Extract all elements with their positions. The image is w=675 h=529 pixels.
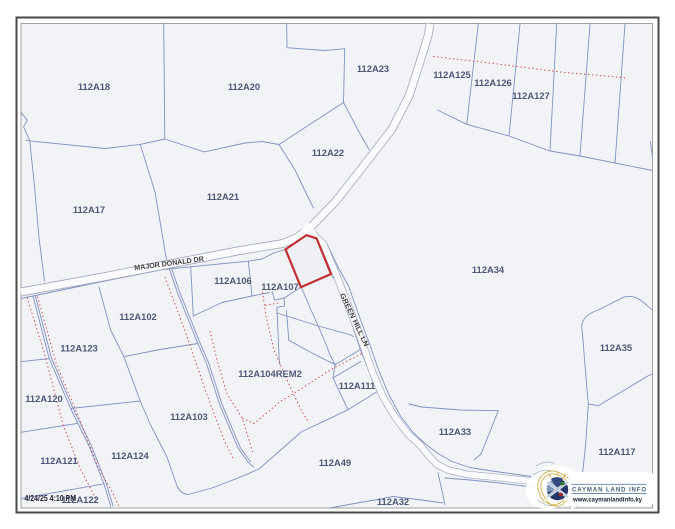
svg-text:112A111: 112A111	[339, 380, 376, 391]
svg-text:112A124: 112A124	[111, 450, 149, 461]
svg-text:112A22: 112A22	[312, 147, 344, 158]
svg-text:112A102: 112A102	[119, 311, 157, 322]
svg-text:CAYMAN LAND INFO: CAYMAN LAND INFO	[572, 486, 647, 493]
svg-text:112A127: 112A127	[512, 90, 550, 101]
svg-text:112A49: 112A49	[319, 457, 351, 468]
svg-text:112A117: 112A117	[598, 446, 635, 457]
svg-text:112A21: 112A21	[207, 191, 239, 202]
svg-text:112A32: 112A32	[377, 496, 409, 507]
svg-text:112A126: 112A126	[474, 77, 512, 88]
svg-text:112A18: 112A18	[78, 81, 110, 92]
svg-text:112A20: 112A20	[228, 81, 260, 92]
svg-text:112A120: 112A120	[25, 393, 63, 404]
svg-text:112A34: 112A34	[472, 264, 505, 275]
svg-text:112A106: 112A106	[214, 275, 252, 286]
svg-text:112A103: 112A103	[170, 411, 208, 422]
svg-text:112A35: 112A35	[600, 342, 632, 353]
svg-text:112A125: 112A125	[433, 69, 471, 80]
svg-text:www.caymanlandinfo.ky: www.caymanlandinfo.ky	[572, 496, 642, 503]
svg-text:112A33: 112A33	[439, 426, 471, 437]
svg-text:112A107: 112A107	[261, 281, 299, 292]
svg-text:112A123: 112A123	[60, 343, 98, 354]
svg-text:112A104REM2: 112A104REM2	[238, 368, 302, 379]
svg-text:4/24/25 4:10 PM: 4/24/25 4:10 PM	[25, 494, 77, 503]
svg-text:112A121: 112A121	[40, 455, 78, 466]
svg-text:112A17: 112A17	[73, 204, 105, 215]
svg-text:112A23: 112A23	[357, 63, 389, 74]
